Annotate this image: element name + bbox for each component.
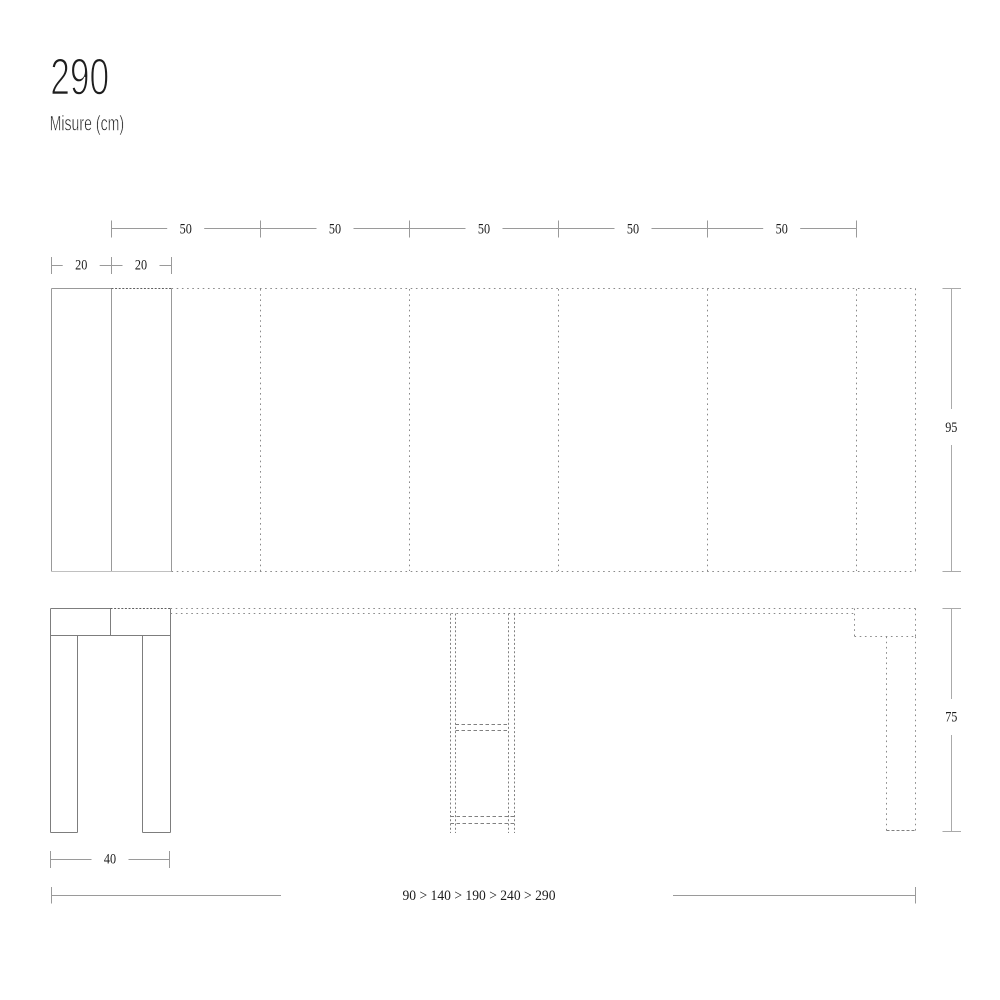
svg-text:95: 95 — [945, 420, 957, 436]
svg-text:50: 50 — [627, 221, 639, 237]
svg-text:50: 50 — [776, 221, 788, 237]
svg-text:50: 50 — [180, 221, 192, 237]
svg-text:20: 20 — [135, 258, 147, 274]
svg-text:50: 50 — [329, 221, 341, 237]
svg-text:75: 75 — [945, 709, 957, 725]
svg-text:290: 290 — [50, 49, 109, 107]
svg-text:40: 40 — [104, 852, 116, 868]
svg-text:Misure (cm): Misure (cm) — [50, 112, 125, 135]
svg-text:20: 20 — [75, 258, 87, 274]
svg-text:90 > 140 > 190 > 240 > 290: 90 > 140 > 190 > 240 > 290 — [403, 888, 556, 904]
svg-text:50: 50 — [478, 221, 490, 237]
